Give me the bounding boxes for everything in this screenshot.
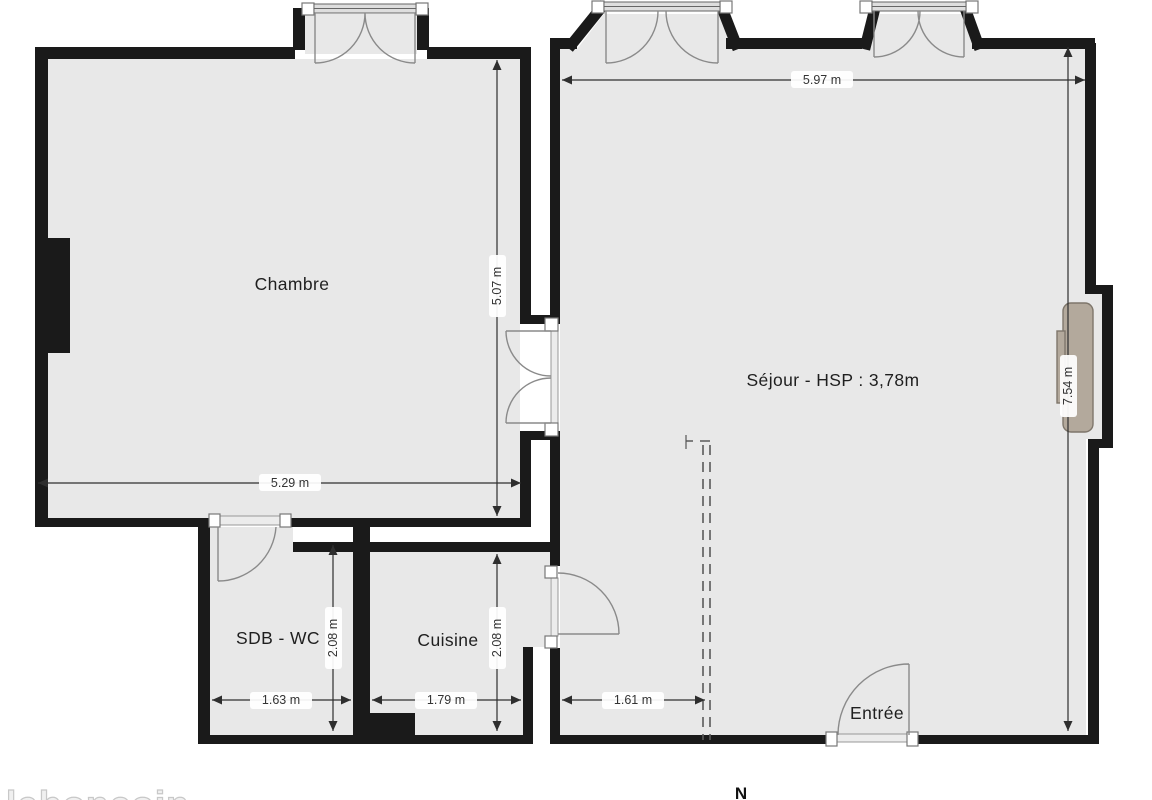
dimension-label: 1.63 m [262,693,300,707]
window-frame [720,1,732,13]
room-label-cuisine: Cuisine [417,630,478,650]
door-sill [220,516,280,525]
door-panel [551,331,558,423]
dimension-label: 5.97 m [803,73,841,87]
dimension-label: 5.29 m [271,476,309,490]
window-frame [592,1,604,13]
room-label-entree: Entrée [850,703,904,723]
door-frame [545,423,558,436]
dimension-label: 2.08 m [490,619,504,657]
door-panel [551,578,558,636]
compass-north-icon: N [735,784,747,800]
door-frame [545,318,558,331]
dimension-label: 1.61 m [614,693,652,707]
room-label-sejour: Séjour - HSP : 3,78m [746,370,919,390]
door-frame [826,732,837,746]
room-label-chambre: Chambre [255,274,330,294]
floorplan-canvas: 5.97 m 5.07 m 5.29 m 7.54 m 2.08 m 2.08 … [0,0,1152,800]
room-label-sdb-wc: SDB - WC [236,628,320,648]
dimension-label: 1.79 m [427,693,465,707]
door-sill [837,734,907,742]
dimension-label: 2.08 m [326,619,340,657]
door-frame [280,514,291,527]
watermark-logo: leboncoin [6,784,190,800]
window-frame [966,1,978,13]
door-frame [545,636,557,648]
dimension-label: 5.07 m [490,267,504,305]
dimension-label: 7.54 m [1061,367,1075,405]
door-frame [209,514,220,527]
window-frame [860,1,872,13]
door-frame [545,566,557,578]
window-frame [416,3,428,15]
window-frame [302,3,314,15]
